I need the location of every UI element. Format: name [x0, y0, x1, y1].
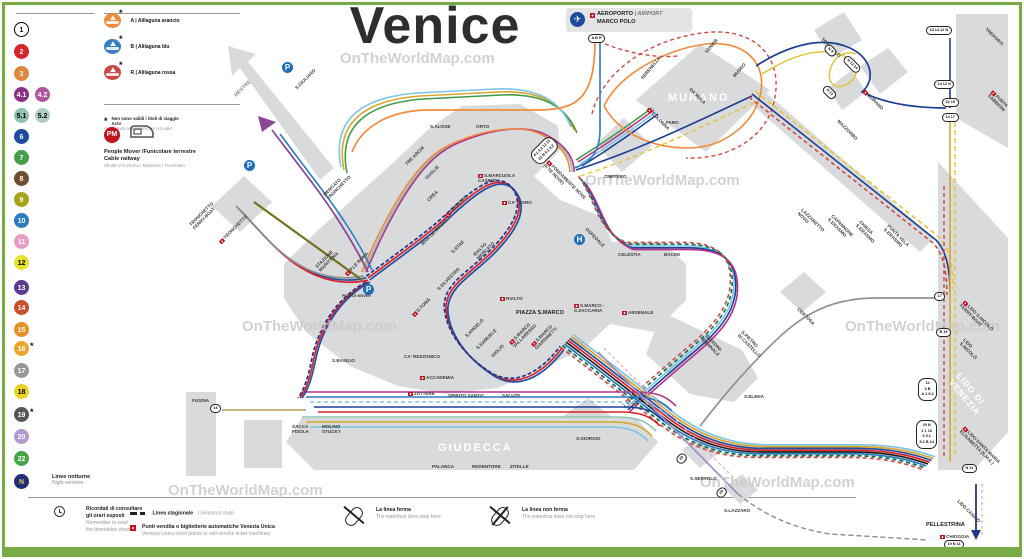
asterisk-note-icon: *	[119, 34, 123, 44]
station-label: ZITELLE	[510, 464, 529, 469]
route-badge[interactable]: 4.2	[35, 87, 50, 102]
route-badge-row: 22	[14, 451, 29, 467]
parking-icon: P	[363, 284, 374, 295]
station-label: RIALTO	[500, 296, 523, 301]
station-label: PELLESTRINA	[926, 522, 965, 528]
parking-icon: P	[282, 62, 293, 73]
route-badge-row: 19*	[14, 407, 34, 423]
alilaguna-label: B | Alilaguna blu	[130, 44, 169, 50]
route-badge-row: 14	[14, 300, 29, 316]
train-icon	[129, 124, 155, 145]
route-badge[interactable]: 4.1	[14, 87, 29, 102]
asterisk-note-icon: *	[119, 60, 123, 70]
asterisk-note-icon: *	[30, 341, 34, 351]
station-label: CELESTIA	[618, 252, 641, 257]
watermark: OnTheWorldMap.com	[242, 318, 397, 335]
venice-transit-map: Venice 1 2 3 4.14.2 5.15.2 6 7 8 9 10	[0, 0, 1024, 559]
route-badge-row: 7	[14, 150, 29, 166]
ticket-point-icon	[130, 525, 136, 531]
alilaguna-legend-item: * R | Alilaguna rossa	[104, 64, 175, 82]
route-badge[interactable]: 1	[14, 22, 29, 37]
route-badge-row: 6	[14, 129, 29, 145]
ticket-point-icon	[408, 392, 413, 397]
parking-icon: P	[244, 160, 255, 171]
route-badge[interactable]: 3	[14, 66, 29, 81]
station-label: S.MARCO -S.ZACCARIA	[574, 303, 605, 314]
alilaguna-label: A | Alilaguna arancio	[130, 18, 179, 24]
stop-capsule[interactable]: 22 15	[942, 98, 959, 107]
station-label: ACCADEMIA	[420, 375, 454, 380]
ticket-point-icon	[940, 535, 945, 540]
route-badge[interactable]: 9	[14, 192, 29, 207]
route-badge-row: 11	[14, 234, 29, 250]
station-label: CIMITERO	[604, 174, 626, 179]
stop-capsule[interactable]: 16	[210, 404, 221, 413]
route-badge-row: 18	[14, 384, 29, 400]
route-network	[0, 0, 1024, 559]
route-badge-row: 20	[14, 429, 29, 445]
station-label: ORTO	[476, 124, 489, 129]
stop-capsule[interactable]: 19 N 11	[944, 540, 964, 549]
station-label: SALUTE	[502, 393, 520, 398]
route-badge-row: 16*	[14, 341, 34, 357]
route-badge-row: 12	[14, 255, 29, 271]
boat-icon: *	[104, 13, 121, 28]
route-badge-row: 15	[14, 322, 29, 338]
stop-capsule[interactable]: A B R	[588, 34, 605, 43]
watermark: OnTheWorldMap.com	[168, 482, 323, 499]
station-label: S.SERVOLO	[690, 476, 717, 481]
no-stop-legend: La linea non ferma The waterbus does not…	[488, 504, 595, 528]
route-badge-row: 4.14.2	[14, 87, 50, 103]
ticket-point-icon	[502, 201, 507, 206]
night-services-note: Linee notturne Night services	[52, 474, 90, 486]
route-badge[interactable]: 18	[14, 384, 29, 399]
station-label: CA' REZZONICO	[404, 354, 440, 359]
route-badge[interactable]: 8	[14, 171, 29, 186]
ticket-point-icon	[420, 376, 425, 381]
clock-icon	[54, 506, 65, 517]
waterbus-stops-icon	[342, 504, 366, 528]
route-badge-row: 13	[14, 280, 29, 296]
stops-here-legend: La linea ferma The waterbus does stop he…	[342, 504, 441, 528]
route-badge-row: N	[14, 474, 29, 490]
station-label: S.ELENA	[744, 394, 764, 399]
seasonal-legend: Linea stagionale | Seasonal route	[130, 505, 234, 523]
route-badge[interactable]: 5.1	[14, 108, 29, 123]
route-badge[interactable]: 15	[14, 322, 29, 337]
station-label: ZATTERE	[408, 391, 435, 396]
route-badge-row: 10	[14, 213, 29, 229]
route-badge-row: 17	[14, 363, 29, 379]
station-label: PALANCA	[432, 464, 454, 469]
route-badge-row: 3	[14, 66, 29, 82]
islands	[186, 12, 1008, 504]
boat-icon: *	[104, 65, 121, 80]
dashed-line-icon	[140, 512, 145, 515]
route-badge-row: 8	[14, 171, 29, 187]
boat-icon: *	[104, 39, 121, 54]
route-badge[interactable]: 16	[14, 341, 29, 356]
stop-capsule[interactable]: 20 N 2 1 10 6 5.1 5.2 B 14	[916, 420, 937, 449]
people-mover-badge: PM	[104, 127, 120, 143]
ticket-point-icon	[500, 297, 505, 302]
route-badge-row: 2	[14, 44, 29, 60]
station-label: SACCAFISOLA	[292, 424, 309, 435]
station-label: FUSINA	[192, 398, 209, 403]
route-badge[interactable]: 14	[14, 300, 29, 315]
waterbus-no-stop-icon	[488, 504, 512, 528]
station-label: SPIRITO SANTO	[448, 393, 484, 398]
route-badge[interactable]: 7	[14, 150, 29, 165]
route-badge[interactable]: 19	[14, 407, 29, 422]
ticket-points-legend: Punti vendita o biglietterie automatiche…	[130, 524, 275, 538]
stop-capsule[interactable]: B 19	[936, 328, 951, 337]
station-label: S.GIORGIO	[576, 436, 601, 441]
route-badge[interactable]: 20	[14, 429, 29, 444]
asterisk-note-icon: *	[119, 8, 123, 18]
station-label: ARSENALE	[622, 310, 653, 315]
people-mover-subtitle: Shuttle P.le Roma / Marittima / Tronchet…	[104, 163, 196, 168]
stop-capsule[interactable]: 14 12 N	[934, 80, 954, 89]
stop-capsule[interactable]: 14 17	[942, 113, 959, 122]
station-label: S.LAZZARO	[724, 508, 750, 513]
station-label: MOLINOSTUCKY	[322, 424, 341, 435]
station-label: BACINI	[664, 252, 680, 257]
asterisk-note-icon: *	[30, 407, 34, 417]
stop-capsule[interactable]: 13 14 12 N	[926, 26, 952, 35]
station-label: FARO	[666, 120, 679, 125]
route-badge-row: 5.15.2	[14, 108, 50, 124]
alilaguna-label: R | Alilaguna rossa	[130, 70, 175, 76]
station-label: CHIOGGIA	[940, 534, 969, 539]
route-badge[interactable]: 10	[14, 213, 29, 228]
airport-marco-polo: ✈ AEROPORTO | AIRPORT MARCO POLO	[566, 8, 692, 32]
stop-capsule[interactable]: 17	[934, 292, 945, 301]
route-badge[interactable]: N	[14, 474, 29, 489]
station-label: GIUDECCA	[438, 442, 513, 455]
route-badge[interactable]: 13	[14, 280, 29, 295]
station-label: REDENTORE	[472, 464, 501, 469]
route-badge[interactable]: 12	[14, 255, 29, 270]
route-badge[interactable]: 2	[14, 44, 29, 59]
page-title: Venice	[300, 0, 570, 56]
route-badge[interactable]: 17	[14, 363, 29, 378]
station-label: S.ALVISE	[430, 124, 451, 129]
stop-capsule[interactable]: 14 6 B A 1 5.2	[918, 378, 937, 401]
dashed-line-icon	[130, 512, 137, 515]
station-label: S.MARCUOLACASINÒ	[478, 173, 515, 184]
route-badge-row: 1	[14, 22, 29, 38]
timetable-legend: Ricordati di consultaregli orari esposti…	[54, 506, 142, 534]
station-label: PIAZZA S.MARCO	[516, 310, 564, 316]
route-badge[interactable]: 22	[14, 451, 29, 466]
alilaguna-legend-item: * B | Alilaguna blu	[104, 38, 169, 56]
hospital-icon: H	[574, 234, 585, 245]
route-badge[interactable]: 11	[14, 234, 29, 249]
route-badge-row: 9	[14, 192, 29, 208]
route-badge[interactable]: 5.2	[35, 108, 50, 123]
alilaguna-legend-item: * A | Alilaguna arancio	[104, 12, 180, 30]
people-mover-legend: PM People Mover /Funicolare terrestreCab…	[104, 124, 196, 168]
people-mover-title: People Mover /Funicolare terrestreCable …	[104, 149, 196, 163]
ticket-point-icon	[622, 311, 627, 316]
airplane-icon: ✈	[570, 12, 585, 27]
route-badge[interactable]: 6	[14, 129, 29, 144]
station-label: S.BASILIO	[332, 358, 355, 363]
station-label: CA' D'ORO	[502, 200, 532, 205]
stop-capsule[interactable]: N 11	[962, 464, 977, 473]
